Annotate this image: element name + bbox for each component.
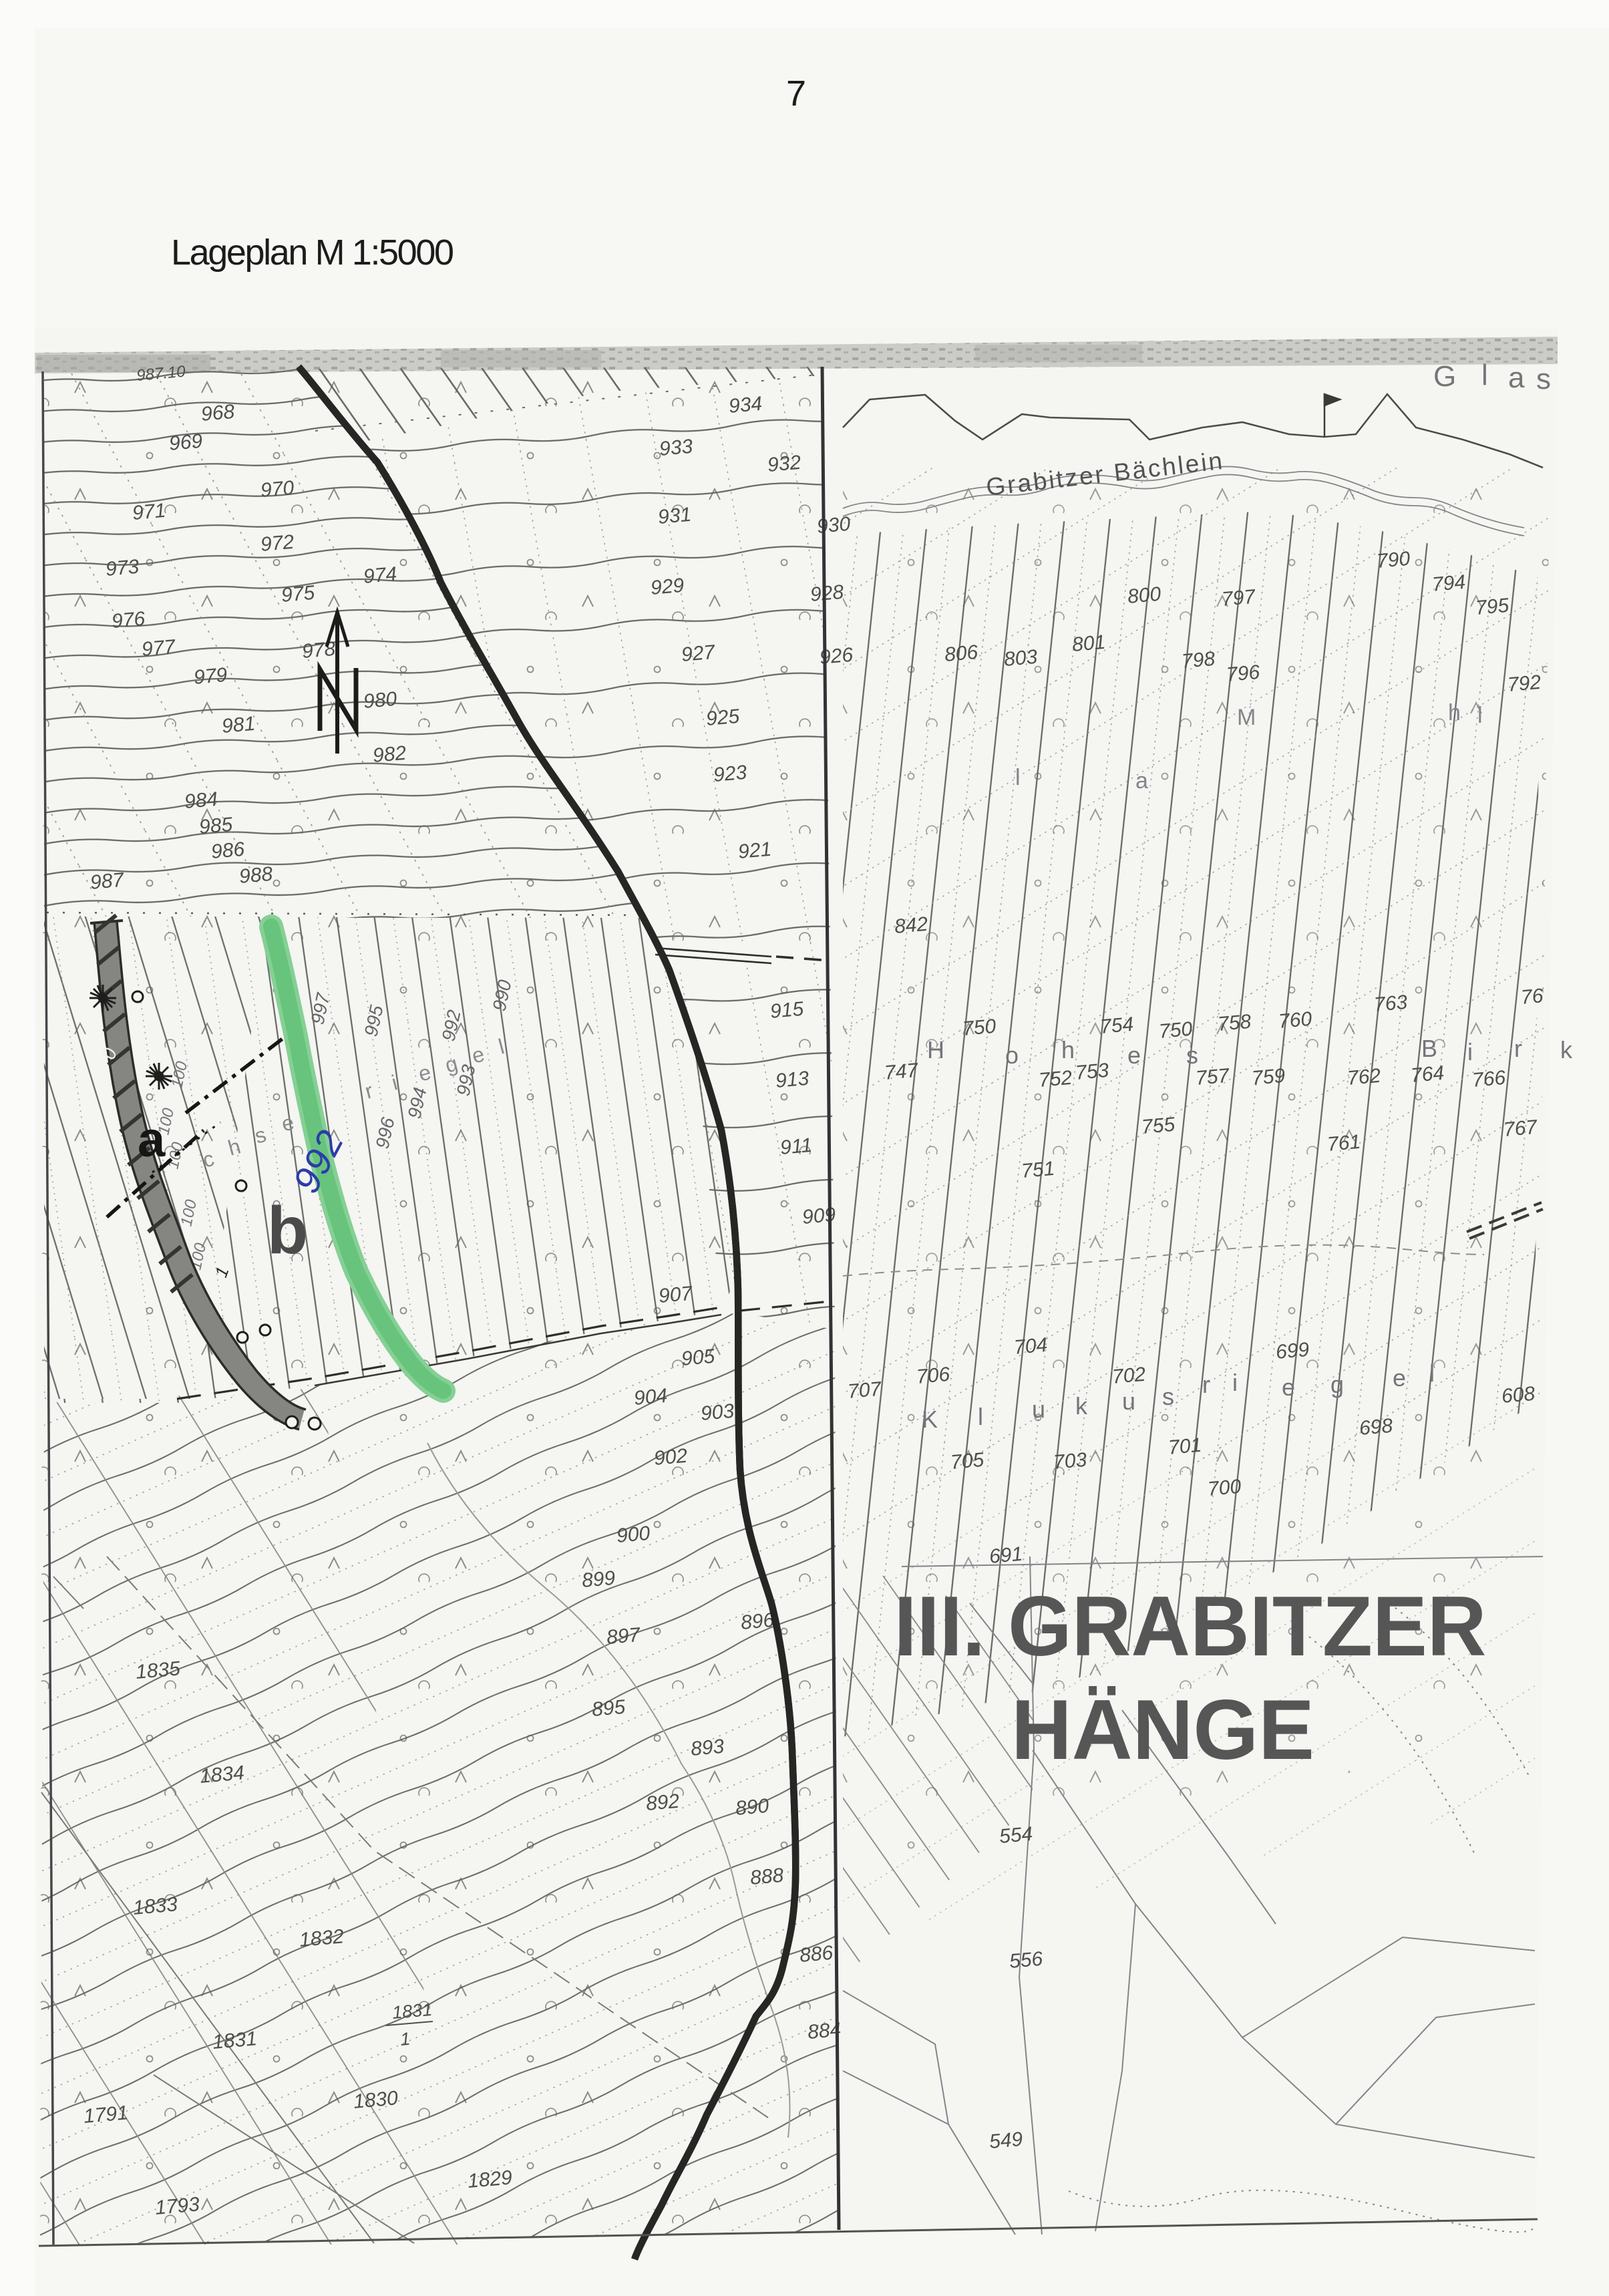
svg-text:691: 691 [989,1543,1024,1568]
svg-text:1834: 1834 [199,1762,245,1788]
svg-text:b: b [267,1193,308,1268]
svg-text:931: 931 [657,504,693,528]
svg-text:l: l [978,1403,983,1430]
svg-text:886: 886 [799,1942,834,1967]
svg-text:764: 764 [1410,1062,1445,1087]
svg-text:698: 698 [1359,1415,1394,1440]
svg-text:G: G [1433,360,1456,393]
svg-text:a: a [1508,361,1525,394]
svg-text:h: h [1448,700,1461,725]
svg-text:806: 806 [944,641,979,666]
svg-text:903: 903 [700,1400,735,1425]
svg-text:705: 705 [950,1449,985,1474]
svg-text:977: 977 [141,636,177,661]
svg-text:1832: 1832 [299,1925,345,1951]
svg-text:1793: 1793 [154,2193,201,2219]
svg-text:892: 892 [645,1790,681,1815]
svg-text:Lageplan M 1:5000: Lageplan M 1:5000 [171,232,454,273]
svg-text:751: 751 [1021,1158,1056,1182]
svg-text:913: 913 [775,1068,810,1092]
svg-text:707: 707 [847,1378,883,1403]
svg-text:925: 925 [705,705,741,730]
svg-text:1: 1 [399,2029,411,2049]
svg-text:u: u [1122,1387,1135,1415]
svg-text:762: 762 [1347,1065,1382,1090]
svg-text:800: 800 [1127,583,1162,608]
svg-text:r: r [1514,1035,1522,1062]
svg-text:797: 797 [1221,586,1257,611]
svg-text:902: 902 [653,1445,689,1470]
svg-text:754: 754 [1099,1013,1135,1038]
svg-text:750: 750 [1158,1018,1194,1043]
svg-text:905: 905 [681,1345,716,1370]
svg-text:g: g [1330,1371,1344,1398]
svg-text:703: 703 [1053,1449,1088,1474]
svg-text:u: u [1032,1396,1045,1423]
svg-text:l: l [1429,1359,1435,1387]
svg-text:763: 763 [1373,991,1409,1016]
svg-text:753: 753 [1075,1059,1110,1084]
svg-text:699: 699 [1275,1339,1310,1363]
svg-text:904: 904 [633,1385,669,1410]
svg-text:970: 970 [260,477,295,502]
svg-text:921: 921 [737,838,773,863]
svg-text:888: 888 [749,1864,785,1889]
svg-text:984: 984 [184,788,219,813]
svg-text:e: e [1127,1041,1141,1069]
svg-text:978: 978 [301,638,337,663]
svg-text:e: e [1393,1364,1406,1391]
svg-text:747: 747 [884,1059,920,1084]
svg-text:796: 796 [1226,661,1261,686]
svg-text:1829: 1829 [467,2166,514,2192]
svg-text:794: 794 [1431,571,1467,596]
svg-text:976: 976 [111,608,146,633]
svg-text:932: 932 [767,452,802,476]
svg-text:893: 893 [690,1736,725,1760]
svg-text:750: 750 [962,1015,997,1040]
svg-text:979: 979 [193,664,228,689]
svg-text:803: 803 [1003,646,1039,671]
svg-text:927: 927 [681,641,717,666]
svg-text:o: o [1005,1041,1019,1069]
svg-text:899: 899 [581,1567,616,1592]
svg-text:701: 701 [1168,1434,1203,1459]
svg-text:M: M [1237,705,1256,730]
svg-text:986: 986 [210,838,246,863]
svg-text:HÄNGE: HÄNGE [1011,1682,1314,1777]
svg-text:1833: 1833 [132,1893,179,1919]
svg-text:B: B [1421,1035,1437,1062]
svg-text:704: 704 [1013,1334,1049,1359]
svg-text:896: 896 [740,1609,775,1634]
svg-text:795: 795 [1475,595,1510,619]
svg-text:900: 900 [616,1522,651,1547]
svg-text:895: 895 [591,1696,627,1721]
svg-text:706: 706 [916,1363,951,1388]
svg-text:792: 792 [1507,671,1542,696]
svg-text:1830: 1830 [353,2087,399,2113]
svg-text:897: 897 [606,1624,642,1649]
svg-text:761: 761 [1326,1131,1362,1156]
svg-text:H: H [927,1036,944,1063]
svg-text:758: 758 [1217,1011,1252,1035]
svg-text:972: 972 [260,531,295,556]
svg-text:981: 981 [221,713,256,737]
svg-text:1835: 1835 [135,1657,182,1683]
svg-text:929: 929 [650,575,685,599]
svg-text:h: h [1061,1036,1075,1063]
svg-text:i: i [1467,1038,1473,1065]
svg-text:755: 755 [1141,1114,1176,1138]
svg-text:923: 923 [713,762,748,786]
svg-text:K: K [922,1406,938,1433]
svg-text:988: 988 [238,863,274,888]
svg-text:608: 608 [1501,1383,1536,1408]
svg-text:r: r [1202,1371,1210,1398]
svg-text:973: 973 [105,556,140,581]
svg-text:975: 975 [281,582,316,607]
svg-text:549: 549 [989,2128,1024,2153]
svg-text:760: 760 [1278,1008,1313,1033]
svg-text:982: 982 [372,742,407,767]
svg-text:915: 915 [769,998,805,1023]
svg-text:752: 752 [1038,1067,1073,1092]
svg-text:s: s [1162,1383,1174,1410]
svg-text:968: 968 [200,401,236,426]
svg-text:798: 798 [1181,648,1216,673]
svg-text:a: a [1135,768,1148,794]
svg-text:767: 767 [1503,1116,1539,1141]
svg-text:985: 985 [198,814,234,838]
svg-text:980: 980 [363,688,398,713]
svg-text:971: 971 [132,500,167,524]
svg-text:1791: 1791 [83,2102,129,2128]
svg-text:k: k [1560,1036,1573,1063]
svg-text:974: 974 [363,563,398,588]
svg-text:907: 907 [658,1283,694,1307]
svg-text:s: s [1186,1041,1198,1069]
svg-text:842: 842 [894,913,929,938]
svg-text:s: s [1536,363,1551,395]
svg-text:k: k [1075,1392,1088,1420]
svg-text:l: l [1477,703,1483,728]
svg-text:7: 7 [786,73,806,114]
svg-text:890: 890 [735,1795,770,1820]
svg-text:759: 759 [1251,1065,1286,1090]
svg-text:801: 801 [1071,631,1107,656]
svg-text:766: 766 [1471,1067,1507,1092]
svg-text:1831: 1831 [391,1999,433,2023]
svg-text:987: 987 [90,869,126,894]
svg-text:a: a [138,1112,166,1167]
svg-text:934: 934 [728,393,763,418]
svg-text:757: 757 [1195,1065,1231,1090]
svg-text:i: i [1232,1369,1238,1396]
svg-text:933: 933 [659,436,694,460]
svg-text:928: 928 [810,581,845,606]
svg-text:556: 556 [1009,1948,1044,1973]
svg-text:702: 702 [1111,1363,1147,1388]
svg-text:e: e [1282,1373,1295,1401]
svg-text:790: 790 [1376,548,1411,572]
svg-text:III. GRABITZER: III. GRABITZER [894,1579,1487,1673]
svg-text:l: l [1015,765,1021,790]
svg-text:76: 76 [1520,985,1544,1009]
svg-text:700: 700 [1207,1476,1242,1500]
svg-text:969: 969 [168,430,204,455]
svg-text:911: 911 [779,1134,814,1159]
svg-text:1831: 1831 [212,2027,258,2054]
svg-text:554: 554 [999,1823,1034,1848]
svg-text:930: 930 [816,513,852,538]
svg-text:l: l [1481,359,1488,391]
